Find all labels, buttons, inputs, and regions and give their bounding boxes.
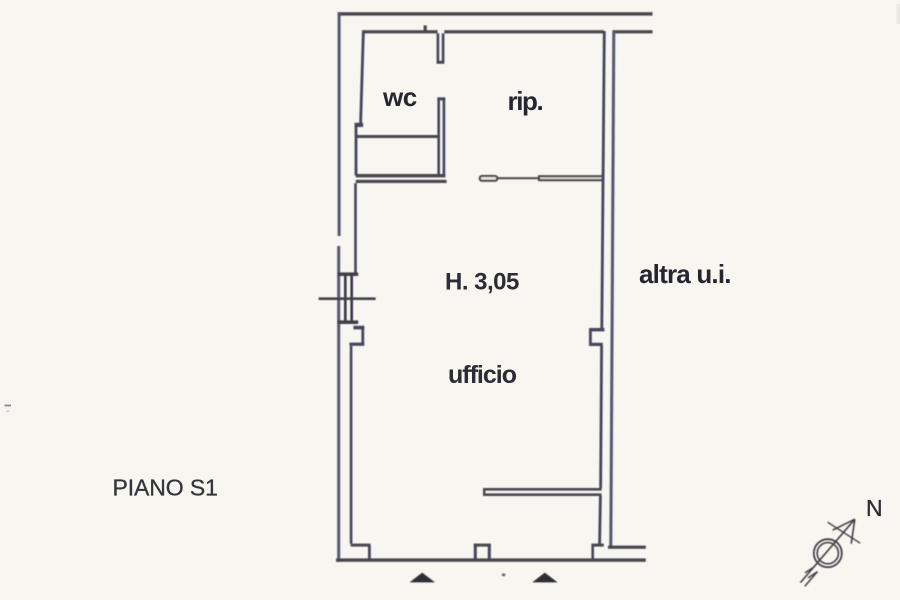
svg-text:ufficio: ufficio (448, 361, 517, 389)
svg-text:PIANO S1: PIANO S1 (113, 475, 218, 501)
svg-text:N: N (866, 495, 883, 521)
svg-text:H. 3,05: H. 3,05 (445, 269, 519, 296)
svg-text:rip.: rip. (508, 86, 543, 116)
svg-text:wc: wc (382, 82, 417, 112)
svg-text:altra u.i.: altra u.i. (639, 259, 731, 289)
